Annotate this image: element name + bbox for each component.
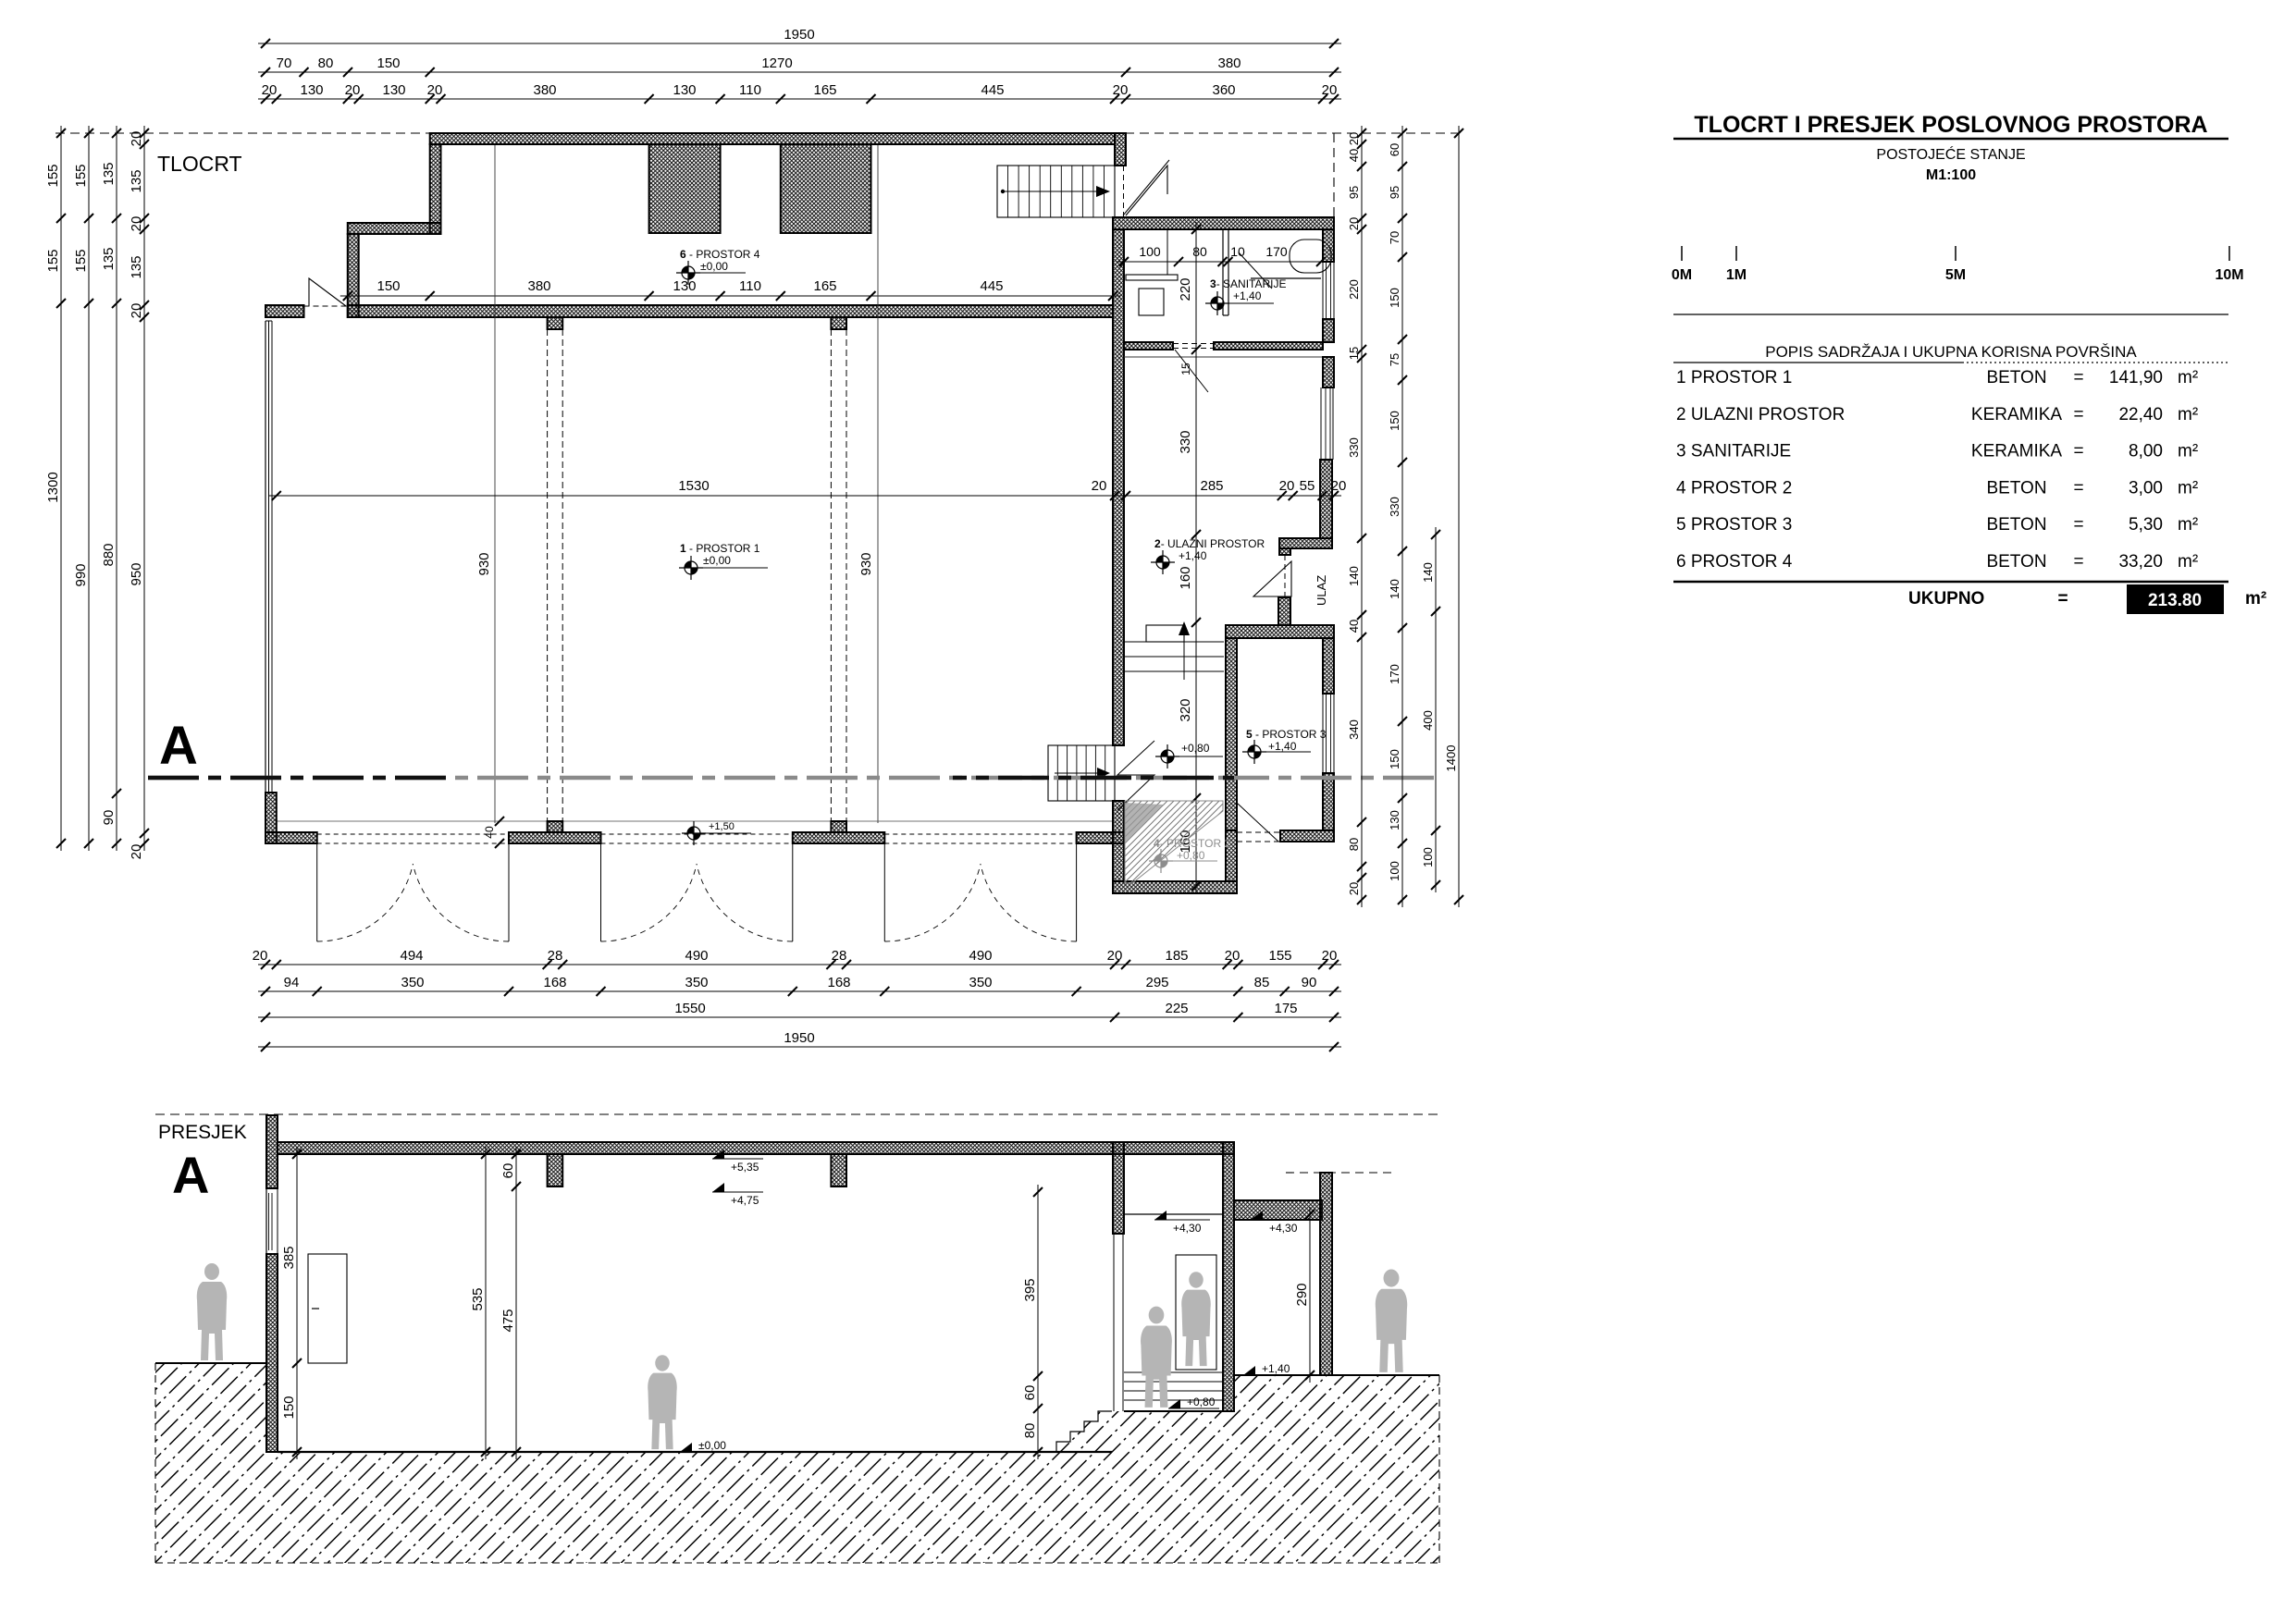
- svg-text:ULAZ: ULAZ: [1315, 575, 1328, 606]
- svg-text:+1,40: +1,40: [1268, 740, 1297, 753]
- svg-text:+1,40: +1,40: [1262, 1362, 1290, 1375]
- svg-text:3 SANITARIJE: 3 SANITARIJE: [1676, 442, 1791, 461]
- svg-text:TLOCRT I PRESJEK POSLOVNOG PRO: TLOCRT I PRESJEK POSLOVNOG PROSTORA: [1694, 112, 2207, 138]
- svg-text:POPIS SADRŽAJA I UKUPNA KORISN: POPIS SADRŽAJA I UKUPNA KORISNA POVRŠINA: [1765, 343, 2137, 361]
- svg-text:1950: 1950: [784, 1030, 814, 1046]
- svg-text:80: 80: [318, 55, 334, 71]
- svg-text:60: 60: [1022, 1385, 1038, 1401]
- svg-text:80: 80: [1192, 244, 1207, 259]
- svg-text:m²: m²: [2178, 442, 2198, 461]
- svg-text:140: 140: [1388, 579, 1401, 599]
- svg-text:15: 15: [1179, 363, 1192, 375]
- svg-text:950: 950: [129, 562, 144, 585]
- svg-text:20: 20: [129, 844, 144, 860]
- svg-text:20: 20: [129, 216, 144, 232]
- svg-text:1 PROSTOR 1: 1 PROSTOR 1: [1676, 368, 1792, 387]
- svg-text:20: 20: [1347, 132, 1361, 145]
- svg-text:=: =: [2073, 368, 2083, 387]
- svg-text:BETON: BETON: [1986, 478, 2046, 498]
- svg-text:20: 20: [1347, 882, 1361, 895]
- svg-text:330: 330: [1388, 497, 1401, 517]
- svg-text:90: 90: [1302, 975, 1317, 990]
- svg-text:385: 385: [281, 1246, 297, 1269]
- svg-text:KERAMIKA: KERAMIKA: [1971, 405, 2063, 424]
- svg-text:BETON: BETON: [1986, 368, 2046, 387]
- svg-text:350: 350: [401, 975, 424, 990]
- svg-text:330: 330: [1347, 437, 1361, 458]
- svg-text:110: 110: [739, 278, 761, 294]
- svg-text:135: 135: [129, 255, 144, 278]
- svg-text:135: 135: [129, 169, 144, 192]
- svg-text:5 PROSTOR 3: 5 PROSTOR 3: [1676, 515, 1792, 535]
- svg-text:=: =: [2073, 478, 2083, 498]
- svg-text:80: 80: [1022, 1423, 1038, 1439]
- svg-text:340: 340: [1347, 719, 1361, 740]
- svg-text:130: 130: [673, 82, 696, 98]
- svg-text:170: 170: [1388, 664, 1401, 684]
- svg-text:40: 40: [483, 826, 496, 839]
- svg-text:20: 20: [1225, 948, 1241, 964]
- svg-text:1550: 1550: [674, 1001, 705, 1016]
- svg-text:6 PROSTOR 4: 6 PROSTOR 4: [1676, 552, 1793, 572]
- svg-text:1950: 1950: [784, 27, 814, 43]
- svg-text:110: 110: [739, 82, 761, 98]
- svg-text:20: 20: [1279, 478, 1295, 494]
- svg-text:60: 60: [500, 1163, 516, 1179]
- svg-text:4 PROSTOR 2: 4 PROSTOR 2: [1676, 478, 1792, 498]
- svg-text:1270: 1270: [761, 55, 792, 71]
- svg-text:165: 165: [813, 278, 836, 294]
- svg-text:380: 380: [1217, 55, 1241, 71]
- svg-text:160: 160: [1178, 566, 1193, 589]
- svg-text:475: 475: [500, 1309, 516, 1332]
- svg-text:20: 20: [129, 303, 144, 319]
- svg-text:130: 130: [673, 278, 696, 294]
- svg-text:1M: 1M: [1726, 267, 1747, 283]
- svg-text:80: 80: [1347, 838, 1361, 851]
- svg-text:+1,40: +1,40: [1179, 549, 1207, 562]
- svg-text:28: 28: [832, 948, 847, 964]
- svg-text:6 - PROSTOR 4: 6 - PROSTOR 4: [680, 248, 760, 261]
- svg-text:1400: 1400: [1444, 745, 1458, 772]
- svg-text:m²: m²: [2178, 405, 2198, 424]
- svg-text:95: 95: [1347, 186, 1361, 199]
- svg-text:UKUPNO: UKUPNO: [1908, 589, 1984, 609]
- svg-text:141,90: 141,90: [2109, 368, 2163, 387]
- svg-text:220: 220: [1347, 279, 1361, 300]
- svg-text:=: =: [2073, 442, 2083, 461]
- svg-text:130: 130: [1388, 810, 1401, 830]
- svg-text:75: 75: [1388, 353, 1401, 366]
- svg-text:100: 100: [1388, 861, 1401, 881]
- svg-text:135: 135: [101, 247, 117, 270]
- svg-text:380: 380: [527, 278, 550, 294]
- svg-text:BETON: BETON: [1986, 515, 2046, 535]
- svg-text:±0,00: ±0,00: [700, 260, 728, 273]
- svg-text:20: 20: [129, 131, 144, 147]
- svg-text:130: 130: [300, 82, 323, 98]
- svg-text:+4,30: +4,30: [1269, 1222, 1298, 1235]
- svg-text:880: 880: [101, 543, 117, 566]
- svg-text:3- SANITARIJE: 3- SANITARIJE: [1210, 277, 1286, 290]
- svg-text:535: 535: [470, 1287, 486, 1310]
- svg-text:m²: m²: [2178, 368, 2198, 387]
- svg-text:+5,35: +5,35: [731, 1161, 759, 1174]
- svg-text:2- ULAZNI PROSTOR: 2- ULAZNI PROSTOR: [1154, 537, 1265, 550]
- svg-text:22,40: 22,40: [2118, 405, 2163, 424]
- svg-text:+4,75: +4,75: [731, 1194, 759, 1207]
- svg-text:295: 295: [1145, 975, 1168, 990]
- svg-text:0M: 0M: [1672, 267, 1692, 283]
- svg-text:+0,80: +0,80: [1187, 1396, 1216, 1408]
- svg-text:60: 60: [1388, 143, 1401, 156]
- svg-text:+1,50: +1,50: [709, 821, 734, 832]
- svg-text:155: 155: [45, 164, 61, 187]
- svg-text:360: 360: [1212, 82, 1235, 98]
- svg-text:=: =: [2073, 552, 2083, 572]
- svg-text:5M: 5M: [1945, 267, 1966, 283]
- svg-text:20: 20: [1322, 82, 1338, 98]
- svg-text:95: 95: [1388, 186, 1401, 199]
- svg-text:20: 20: [1322, 948, 1338, 964]
- svg-text:150: 150: [1388, 411, 1401, 431]
- svg-text:1530: 1530: [678, 478, 709, 494]
- svg-text:1 - PROSTOR 1: 1 - PROSTOR 1: [680, 542, 760, 555]
- svg-text:168: 168: [543, 975, 566, 990]
- svg-text:185: 185: [1165, 948, 1188, 964]
- svg-text:A: A: [172, 1146, 209, 1204]
- svg-text:20: 20: [1113, 82, 1129, 98]
- svg-text:28: 28: [548, 948, 563, 964]
- svg-text:8,00: 8,00: [2129, 442, 2163, 461]
- svg-text:150: 150: [376, 55, 400, 71]
- svg-text:175: 175: [1274, 1001, 1297, 1016]
- svg-text:155: 155: [45, 249, 61, 272]
- svg-text:+1,40: +1,40: [1233, 289, 1262, 302]
- svg-text:350: 350: [969, 975, 992, 990]
- svg-text:±0,00: ±0,00: [703, 554, 731, 567]
- svg-text:m²: m²: [2245, 589, 2266, 609]
- svg-text:150: 150: [1388, 749, 1401, 769]
- svg-text:20: 20: [427, 82, 443, 98]
- svg-text:445: 445: [981, 82, 1004, 98]
- svg-text:155: 155: [1268, 948, 1291, 964]
- svg-text:490: 490: [969, 948, 992, 964]
- svg-text:BETON: BETON: [1986, 552, 2046, 572]
- svg-text:225: 225: [1165, 1001, 1188, 1016]
- svg-text:PRESJEK: PRESJEK: [158, 1122, 247, 1143]
- svg-text:m²: m²: [2178, 478, 2198, 498]
- svg-text:150: 150: [376, 278, 400, 294]
- svg-text:20: 20: [1331, 478, 1347, 494]
- svg-text:M1:100: M1:100: [1926, 167, 1976, 183]
- svg-text:445: 445: [980, 278, 1003, 294]
- svg-text:70: 70: [277, 55, 292, 71]
- svg-text:100: 100: [1421, 847, 1435, 867]
- svg-text:930: 930: [858, 552, 874, 575]
- svg-text:94: 94: [284, 975, 300, 990]
- svg-text:168: 168: [827, 975, 850, 990]
- svg-text:290: 290: [1294, 1283, 1310, 1306]
- svg-text:20: 20: [1107, 948, 1123, 964]
- svg-text:2 ULAZNI PROSTOR: 2 ULAZNI PROSTOR: [1676, 405, 1845, 424]
- svg-text:330: 330: [1178, 430, 1193, 453]
- svg-text:KERAMIKA: KERAMIKA: [1971, 442, 2063, 461]
- svg-text:165: 165: [813, 82, 836, 98]
- svg-text:POSTOJEĆE STANJE: POSTOJEĆE STANJE: [1876, 145, 2025, 163]
- svg-text:A: A: [159, 716, 198, 776]
- svg-text:155: 155: [73, 164, 89, 187]
- svg-text:5,30: 5,30: [2129, 515, 2163, 535]
- svg-text:5 - PROSTOR 3: 5 - PROSTOR 3: [1246, 728, 1327, 741]
- svg-text:20: 20: [262, 82, 278, 98]
- svg-text:=: =: [2057, 589, 2068, 609]
- svg-text:20: 20: [1092, 478, 1107, 494]
- svg-text:+4,30: +4,30: [1173, 1222, 1202, 1235]
- svg-text:1300: 1300: [45, 472, 61, 502]
- svg-text:20: 20: [253, 948, 268, 964]
- svg-text:40: 40: [1347, 620, 1361, 633]
- svg-text:55: 55: [1300, 478, 1315, 494]
- svg-text:TLOCRT: TLOCRT: [157, 152, 242, 176]
- svg-text:85: 85: [1254, 975, 1270, 990]
- svg-text:494: 494: [400, 948, 423, 964]
- svg-text:33,20: 33,20: [2118, 552, 2163, 572]
- svg-text:90: 90: [101, 810, 117, 826]
- svg-text:140: 140: [1421, 562, 1435, 583]
- svg-text:490: 490: [685, 948, 708, 964]
- svg-text:=: =: [2073, 515, 2083, 535]
- svg-text:70: 70: [1388, 231, 1401, 244]
- svg-text:40: 40: [1347, 149, 1361, 162]
- svg-text:213.80: 213.80: [2148, 591, 2202, 610]
- svg-text:395: 395: [1022, 1278, 1038, 1301]
- svg-text:+0,80: +0,80: [1177, 849, 1205, 862]
- svg-text:150: 150: [1388, 288, 1401, 308]
- svg-text:320: 320: [1178, 698, 1193, 721]
- svg-text:990: 990: [73, 563, 89, 586]
- svg-text:3,00: 3,00: [2129, 478, 2163, 498]
- svg-text:155: 155: [73, 249, 89, 272]
- svg-text:135: 135: [101, 162, 117, 185]
- svg-text:15: 15: [1347, 347, 1361, 360]
- svg-text:400: 400: [1421, 710, 1435, 731]
- svg-text:20: 20: [345, 82, 361, 98]
- svg-text:+0,80: +0,80: [1181, 742, 1210, 755]
- svg-text:285: 285: [1200, 478, 1223, 494]
- svg-text:m²: m²: [2178, 552, 2198, 572]
- svg-text:380: 380: [533, 82, 556, 98]
- svg-text:=: =: [2073, 405, 2083, 424]
- svg-text:130: 130: [382, 82, 405, 98]
- svg-text:10: 10: [1230, 244, 1245, 259]
- svg-text:±0,00: ±0,00: [698, 1439, 726, 1452]
- svg-text:10M: 10M: [2215, 267, 2243, 283]
- svg-text:170: 170: [1265, 244, 1288, 259]
- svg-text:m²: m²: [2178, 515, 2198, 535]
- svg-text:220: 220: [1178, 277, 1193, 301]
- svg-text:20: 20: [1347, 217, 1361, 230]
- svg-text:100: 100: [1139, 244, 1161, 259]
- svg-text:140: 140: [1347, 566, 1361, 586]
- svg-text:350: 350: [685, 975, 708, 990]
- svg-text:150: 150: [281, 1396, 297, 1419]
- svg-text:930: 930: [476, 552, 492, 575]
- svg-text:4- PROSTOR 2: 4- PROSTOR 2: [1154, 837, 1230, 850]
